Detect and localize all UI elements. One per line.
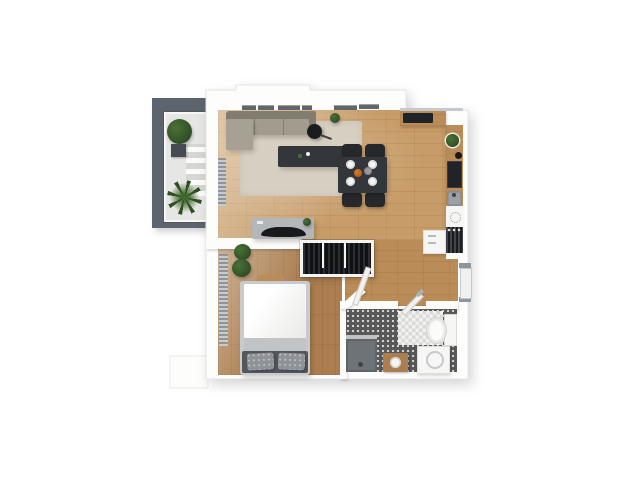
- room-bathroom: [0, 0, 640, 480]
- shower-tray: [346, 339, 377, 372]
- floor-plan-render: [0, 0, 640, 480]
- vanity-basin-icon: [390, 357, 401, 368]
- washer-drum-icon: [426, 351, 444, 369]
- toilet-bowl-icon: [426, 317, 447, 344]
- shower-drain-icon: [358, 362, 363, 367]
